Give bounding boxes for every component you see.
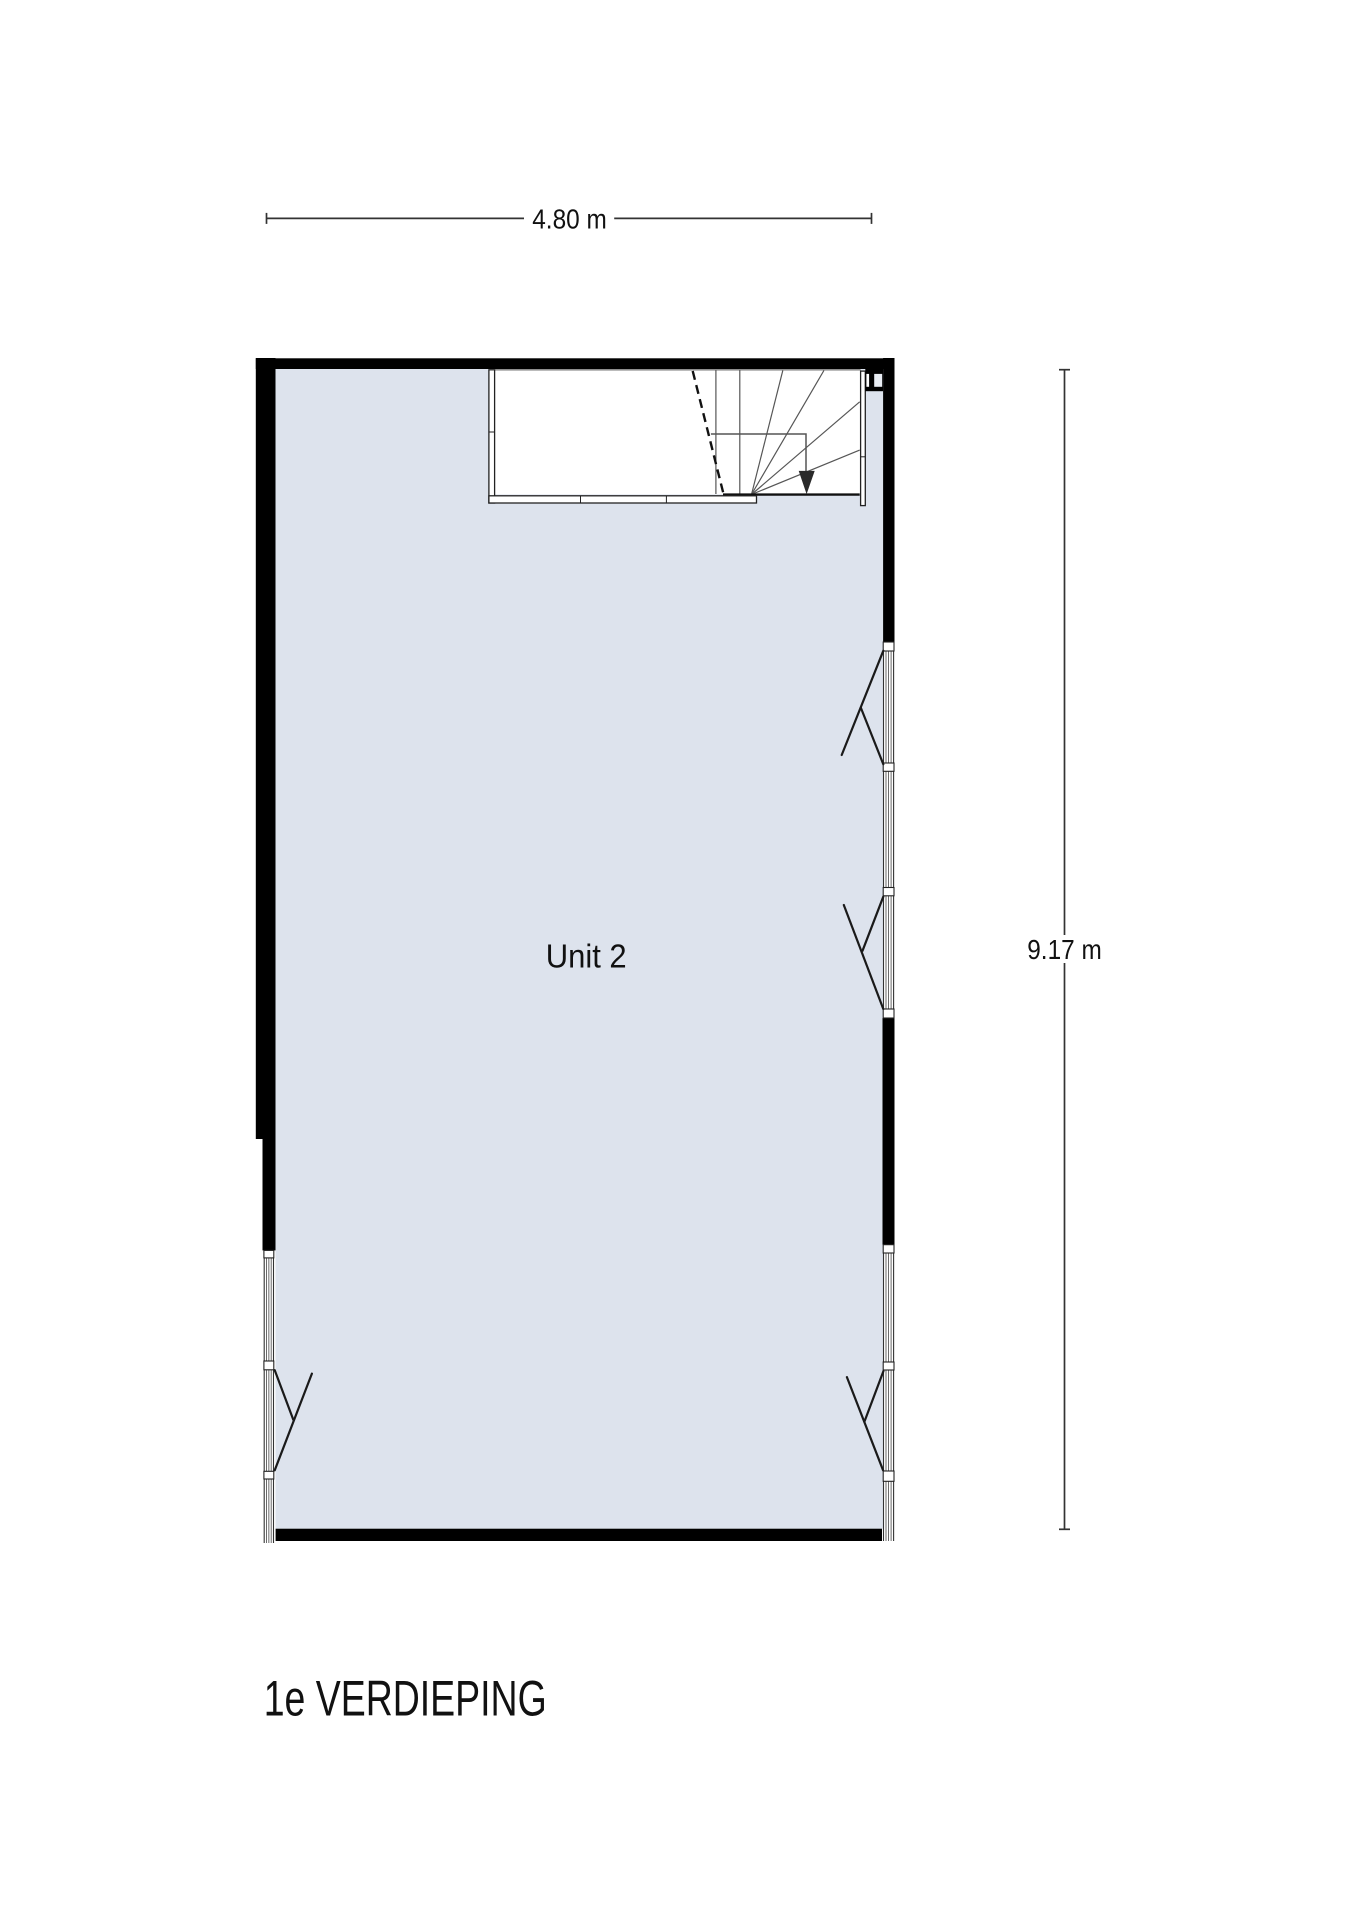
svg-text:9.17 m: 9.17 m <box>1027 934 1102 965</box>
svg-text:1e VERDIEPING: 1e VERDIEPING <box>264 1671 547 1727</box>
svg-text:Unit 2: Unit 2 <box>546 937 627 974</box>
svg-text:4.80 m: 4.80 m <box>532 204 607 235</box>
